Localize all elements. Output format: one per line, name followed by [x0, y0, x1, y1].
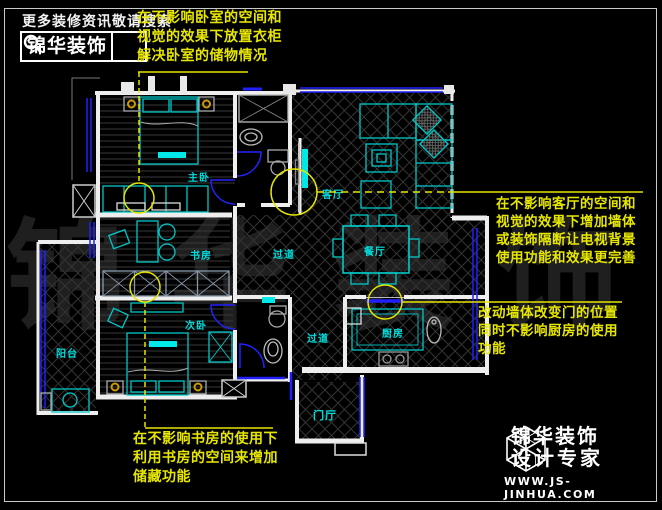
room-label-master: 主卧: [188, 171, 210, 184]
annotation-bedroom: 在不影响卧室的空间和 视觉的效果下放置衣柜 解决卧室的储物情况: [137, 9, 282, 66]
brand-website: WWW.JS-JINHUA.COM: [504, 475, 662, 501]
annotation-line: 利用书房的空间来增加: [133, 449, 278, 468]
annotation-study: 在不影响书房的使用下 利用书房的空间来增加 储藏功能: [133, 430, 278, 487]
room-label-second: 次卧: [185, 319, 207, 332]
room-label-hallway-lower: 过道: [307, 332, 329, 345]
brand-block: 锦华装饰 设计专家 WWW.JS-JINHUA.COM: [504, 425, 662, 501]
bath2-sink: [264, 339, 282, 363]
bathtub: [239, 95, 288, 122]
annotation-living: 在不影响客厅的空间和 视觉的效果下增加墙体 或装饰隔断让电视背景 使用功能和效果…: [496, 195, 636, 267]
annotation-line: 在不影响书房的使用下: [133, 430, 278, 449]
bath2-shelf: [262, 297, 275, 303]
annotation-line: 功能: [478, 340, 618, 358]
annotation-kitchen: 改动墙体改变门的位置 同时不影响厨房的使用 功能: [478, 304, 618, 358]
annotation-line: 在不影响卧室的空间和: [137, 9, 282, 28]
annotation-line: 使用功能和效果更完善: [496, 249, 636, 267]
room-label-balcony: 阳台: [56, 347, 78, 360]
annotation-line: 或装饰隔断让电视背景: [496, 231, 636, 249]
poster-canvas: 锦华装饰: [0, 0, 662, 510]
annotation-line: 视觉的效果下放置衣柜: [137, 28, 282, 47]
annotation-line: 储藏功能: [133, 468, 278, 487]
room-label-dining: 餐厅: [363, 245, 386, 258]
annotation-line: 视觉的效果下增加墙体: [496, 213, 636, 231]
bath1-sink: [240, 129, 262, 145]
room-label-kitchen: 厨房: [382, 327, 404, 340]
room-label-entry: 门厅: [313, 408, 337, 422]
annotation-line: 解决卧室的储物情况: [137, 47, 282, 66]
brand-logo-box: 锦华装饰: [20, 31, 147, 62]
room-label-hallway-upper: 过道: [273, 248, 295, 261]
room-label-living: 客厅: [321, 188, 344, 201]
annotation-line: 改动墙体改变门的位置: [478, 304, 618, 322]
annotation-line: 同时不影响厨房的使用: [478, 322, 618, 340]
room-label-study: 书房: [190, 249, 212, 262]
annotation-line: 在不影响客厅的空间和: [496, 195, 636, 213]
